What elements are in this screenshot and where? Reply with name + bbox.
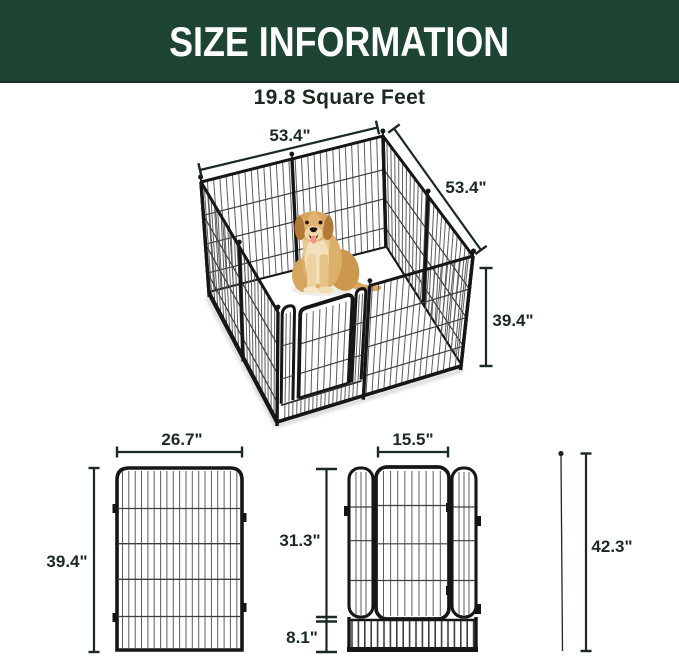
svg-text:53.4": 53.4" [269, 126, 310, 145]
svg-text:15.5": 15.5" [392, 430, 433, 449]
svg-text:42.3": 42.3" [591, 537, 632, 556]
svg-text:39.4": 39.4" [46, 552, 87, 571]
svg-text:39.4": 39.4" [492, 311, 533, 330]
svg-text:53.4": 53.4" [445, 178, 486, 197]
svg-text:26.7": 26.7" [161, 430, 202, 449]
svg-text:31.3": 31.3" [279, 531, 320, 550]
svg-text:8.1": 8.1" [286, 628, 318, 647]
